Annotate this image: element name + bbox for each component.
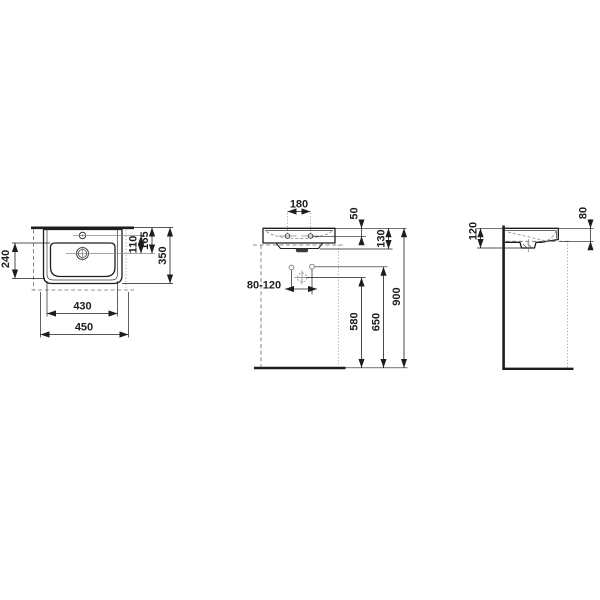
- sink-side-outline: [505, 228, 558, 248]
- supply-offset-range-label: 80-120: [247, 280, 281, 292]
- drain-stub: [296, 249, 309, 253]
- underside-outline: [276, 243, 323, 249]
- bowl-depth-dim-label: 240: [0, 250, 12, 268]
- technical-drawing: 240 110 165 350 430 450: [0, 0, 600, 600]
- body-height-dim-label: 130: [376, 229, 388, 247]
- floor-to-rim-dim-label: 900: [391, 287, 403, 305]
- top-view: 240 110 165 350 430 450: [0, 228, 173, 338]
- bowl-hidden-curve: [267, 232, 332, 239]
- tap-to-drain-dim-label: 110: [128, 236, 140, 254]
- back-to-drain-dim-label: 165: [139, 231, 151, 249]
- floor-to-drain-dim-label: 580: [349, 312, 361, 330]
- inner-width-dim-label: 430: [73, 301, 91, 313]
- hole-spacing-dim-label: 180: [290, 199, 308, 211]
- side-view: 120 80: [468, 207, 594, 370]
- front-height-dim-label: 80: [578, 207, 590, 219]
- washbasin-dimension-drawing: 240 110 165 350 430 450: [0, 0, 600, 600]
- width-dim-label: 450: [75, 322, 93, 334]
- front-view: 180 50 130 80-120 580 650 900: [247, 199, 408, 369]
- back-height-dim-label: 120: [468, 222, 480, 240]
- drain-hatch: [523, 244, 532, 248]
- top-to-holes-dim-label: 50: [349, 207, 361, 219]
- floor-to-supply-dim-label: 650: [371, 313, 383, 331]
- bowl-hidden-lines: [508, 231, 556, 241]
- depth-dim-label: 350: [157, 246, 169, 264]
